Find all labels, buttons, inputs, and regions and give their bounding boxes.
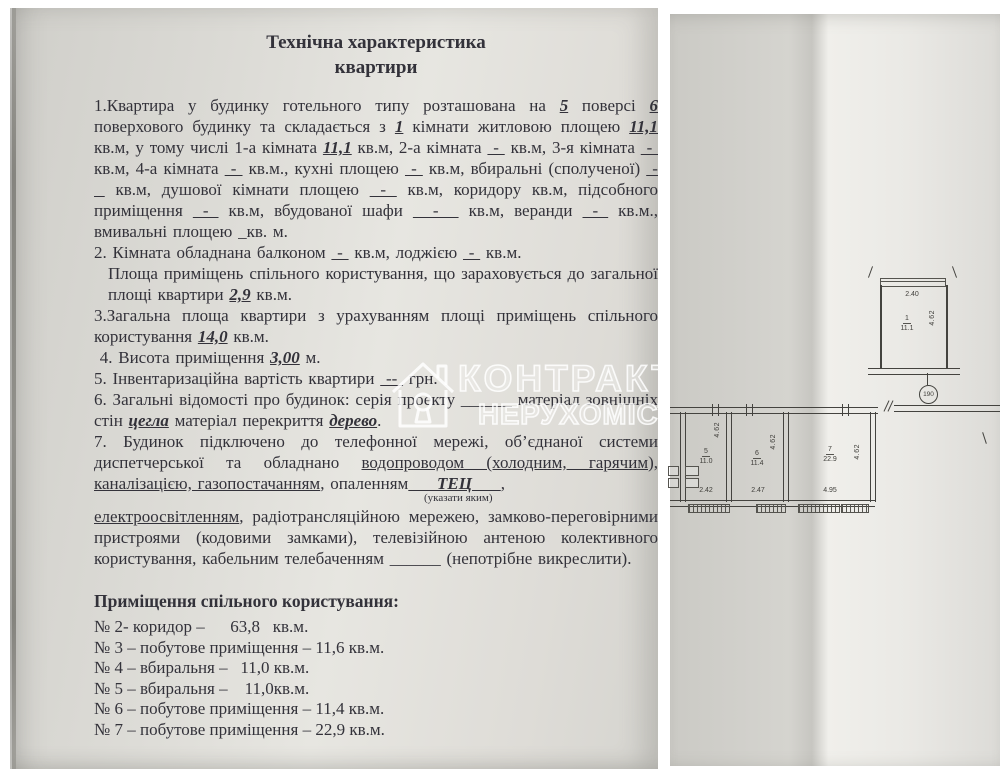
page-binding-edge xyxy=(10,8,16,769)
floor-plan: 2.40 1 11.1 4.62 190 xyxy=(670,14,1000,766)
fixture-room5-a xyxy=(685,466,699,476)
document-text-block: Технічна характеристика квартири 1.Кварт… xyxy=(94,30,658,740)
paragraph-7b: електроосвітленням, радіотрансляційною м… xyxy=(94,506,658,569)
common-area-item: № 6 – побутове приміщення – 11,4 кв.м. xyxy=(94,699,658,720)
paragraph-6: 6. Загальні відомості про будинок: серія… xyxy=(94,389,658,431)
title-line-2: квартири xyxy=(94,55,658,80)
room7-area: 22.9 xyxy=(810,456,850,464)
common-area-item: № 4 – вбиральня – 11,0 кв.м. xyxy=(94,658,658,679)
room7-number: 7 xyxy=(810,446,850,455)
room5-number: 5 xyxy=(694,448,718,457)
door-jamb-mark xyxy=(718,404,719,416)
fixture-partial-room-b xyxy=(668,478,679,488)
window-room5 xyxy=(688,504,730,513)
document-paragraphs: 1.Квартира у будинку готельного типу роз… xyxy=(94,95,658,569)
room7-width-dim: 4.95 xyxy=(800,487,860,495)
common-area-item: № 7 – побутове приміщення – 22,9 кв.м. xyxy=(94,720,658,741)
common-area-item: № 5 – вбиральня – 11,0кв.м. xyxy=(94,679,658,700)
room5-depth-dim: 4.62 xyxy=(714,422,722,438)
room6-width-dim: 2.47 xyxy=(732,487,784,495)
room6-area: 11.4 xyxy=(742,460,772,468)
paragraph-4: 4. Висота приміщення 3,00 м. xyxy=(94,347,658,368)
upper-room-bottom-wall xyxy=(868,368,960,375)
room5-area: 11.0 xyxy=(694,458,718,466)
upper-room-number: 1 xyxy=(892,315,922,324)
document-title: Технічна характеристика квартири xyxy=(94,30,658,80)
door-jamb-mark xyxy=(746,404,747,416)
window-room7-a xyxy=(798,504,840,513)
room7-depth-dim: 4.62 xyxy=(854,444,862,460)
apartment-leader-line xyxy=(927,373,928,385)
door-jamb-mark xyxy=(842,404,843,416)
fixture-partial-room-a xyxy=(668,466,679,476)
room5-width-dim: 2.42 xyxy=(684,487,728,495)
room6-depth-dim: 4.62 xyxy=(770,434,778,450)
apartment-number-circle: 190 xyxy=(919,385,938,404)
wall-room7-right xyxy=(870,412,876,502)
common-area-item: № 3 – побутове приміщення – 11,6 кв.м. xyxy=(94,638,658,659)
paragraph-2b: Площа приміщень спільного користування, … xyxy=(94,263,658,305)
title-line-1: Технічна характеристика xyxy=(94,30,658,55)
paragraph-3: 3.Загальна площа квартири з урахуванням … xyxy=(94,305,658,347)
corridor-wall-left xyxy=(670,407,878,414)
window-room7-b xyxy=(841,504,869,513)
door-jamb-mark xyxy=(712,404,713,416)
common-areas-list: № 2- коридор – 63,8 кв.м.№ 3 – побутове … xyxy=(94,617,658,740)
apartment-number: 190 xyxy=(923,391,934,398)
corridor-wall-right xyxy=(894,405,1000,412)
floorplan-photo: 2.40 1 11.1 4.62 190 xyxy=(670,14,1000,766)
wall-break-mark xyxy=(982,432,987,444)
door-jamb-mark xyxy=(848,404,849,416)
paragraph-7: 7. Будинок підключено до телефонної мере… xyxy=(94,431,658,494)
common-areas-header: Приміщення спільного користування: xyxy=(94,591,658,612)
wall-break-mark xyxy=(952,266,957,278)
door-jamb-mark xyxy=(752,404,753,416)
window-room6 xyxy=(756,504,786,513)
upper-room-width-dim: 2.40 xyxy=(880,291,944,299)
common-area-item: № 2- коридор – 63,8 кв.м. xyxy=(94,617,658,638)
upper-room-area: 11.1 xyxy=(892,325,922,333)
paragraph-1: 1.Квартира у будинку готельного типу роз… xyxy=(94,95,658,242)
paragraph-5: 5. Інвентаризаційна вартість квартири --… xyxy=(94,368,658,389)
document-photo: Технічна характеристика квартири 1.Кварт… xyxy=(12,8,658,769)
photo-collage: Технічна характеристика квартири 1.Кварт… xyxy=(0,0,1000,780)
paragraph-2: 2. Кімната обладнана балконом - кв.м, ло… xyxy=(94,242,658,263)
upper-room-depth-dim: 4.62 xyxy=(929,310,937,326)
room6-number: 6 xyxy=(742,450,772,459)
wall-break-mark xyxy=(868,266,873,278)
